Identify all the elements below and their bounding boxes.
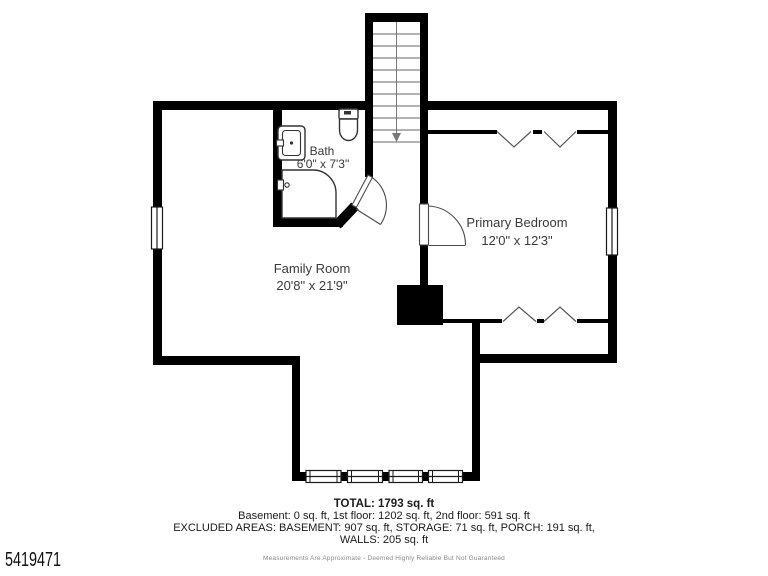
angled-wall [337, 206, 355, 225]
closet-wall [443, 319, 502, 323]
wall [153, 356, 300, 365]
staircase [373, 22, 420, 142]
chimney [397, 285, 443, 325]
stair-direction-arrow-icon [392, 133, 401, 142]
closet-wall [428, 130, 497, 134]
wall [420, 13, 428, 204]
sink-icon [277, 126, 306, 160]
wall [428, 101, 617, 110]
wall [365, 13, 428, 22]
bath-door [352, 175, 386, 225]
wall [153, 110, 162, 207]
door-chord [356, 209, 381, 225]
door-leaf [420, 204, 429, 245]
windows [152, 207, 618, 483]
window-bottom-1 [306, 471, 341, 483]
wall [608, 110, 617, 208]
family-room-dimensions: 20'8" x 21'9" [276, 278, 348, 293]
floor-plan-page: Bath 6'0" x 7'3" Family Room 20'8" x 21'… [0, 0, 768, 576]
listing-id: 5419471 [5, 549, 61, 572]
closet-wall [537, 319, 544, 323]
wall [273, 218, 343, 227]
window-bottom-3 [389, 471, 423, 483]
wall [292, 356, 300, 481]
area-summary: TOTAL: 1793 sq. ft Basement: 0 sq. ft, 1… [0, 498, 768, 546]
bath-label: Bath [310, 144, 335, 158]
primary-bedroom-label: Primary Bedroom [466, 215, 567, 230]
primary-bedroom-dimensions: 12'0" x 12'3" [481, 233, 553, 248]
door-swing-arc [429, 206, 466, 245]
closet-door-chevron [544, 307, 576, 322]
window-bottom-2 [348, 471, 383, 483]
floor-areas: Basement: 0 sq. ft, 1st floor: 1202 sq. … [0, 510, 768, 522]
wall [365, 13, 373, 177]
bath-dimensions: 6'0" x 7'3" [297, 157, 349, 171]
bedroom-door [420, 204, 466, 246]
walls-area: WALLS: 205 sq. ft [0, 534, 768, 546]
closet-wall [577, 319, 608, 323]
closet-door-chevron [497, 132, 531, 148]
closet-wall [533, 130, 542, 134]
disclaimer-text: Measurements Are Approximate - Deemed Hi… [0, 555, 768, 562]
wall [153, 249, 162, 365]
door-swing-arc [368, 175, 386, 225]
family-room-label: Family Room [274, 261, 351, 276]
wall [472, 354, 617, 363]
shower-icon [282, 170, 336, 218]
closet-door-chevron [544, 132, 576, 148]
wall [608, 255, 617, 363]
total-area: TOTAL: 1793 sq. ft [0, 498, 768, 510]
wall [472, 322, 480, 481]
closet-wall [577, 130, 608, 134]
toilet-icon [339, 109, 358, 141]
door-leaf [352, 175, 372, 207]
floor-plan-drawing: Bath 6'0" x 7'3" Family Room 20'8" x 21'… [0, 0, 768, 576]
wall [420, 245, 428, 287]
window-bottom-4 [429, 471, 463, 483]
excluded-areas: EXCLUDED AREAS: BASEMENT: 907 sq. ft, ST… [0, 522, 768, 534]
closet-door-chevron [503, 307, 536, 322]
window-left-wall [152, 207, 163, 249]
window-right-wall [607, 208, 618, 255]
